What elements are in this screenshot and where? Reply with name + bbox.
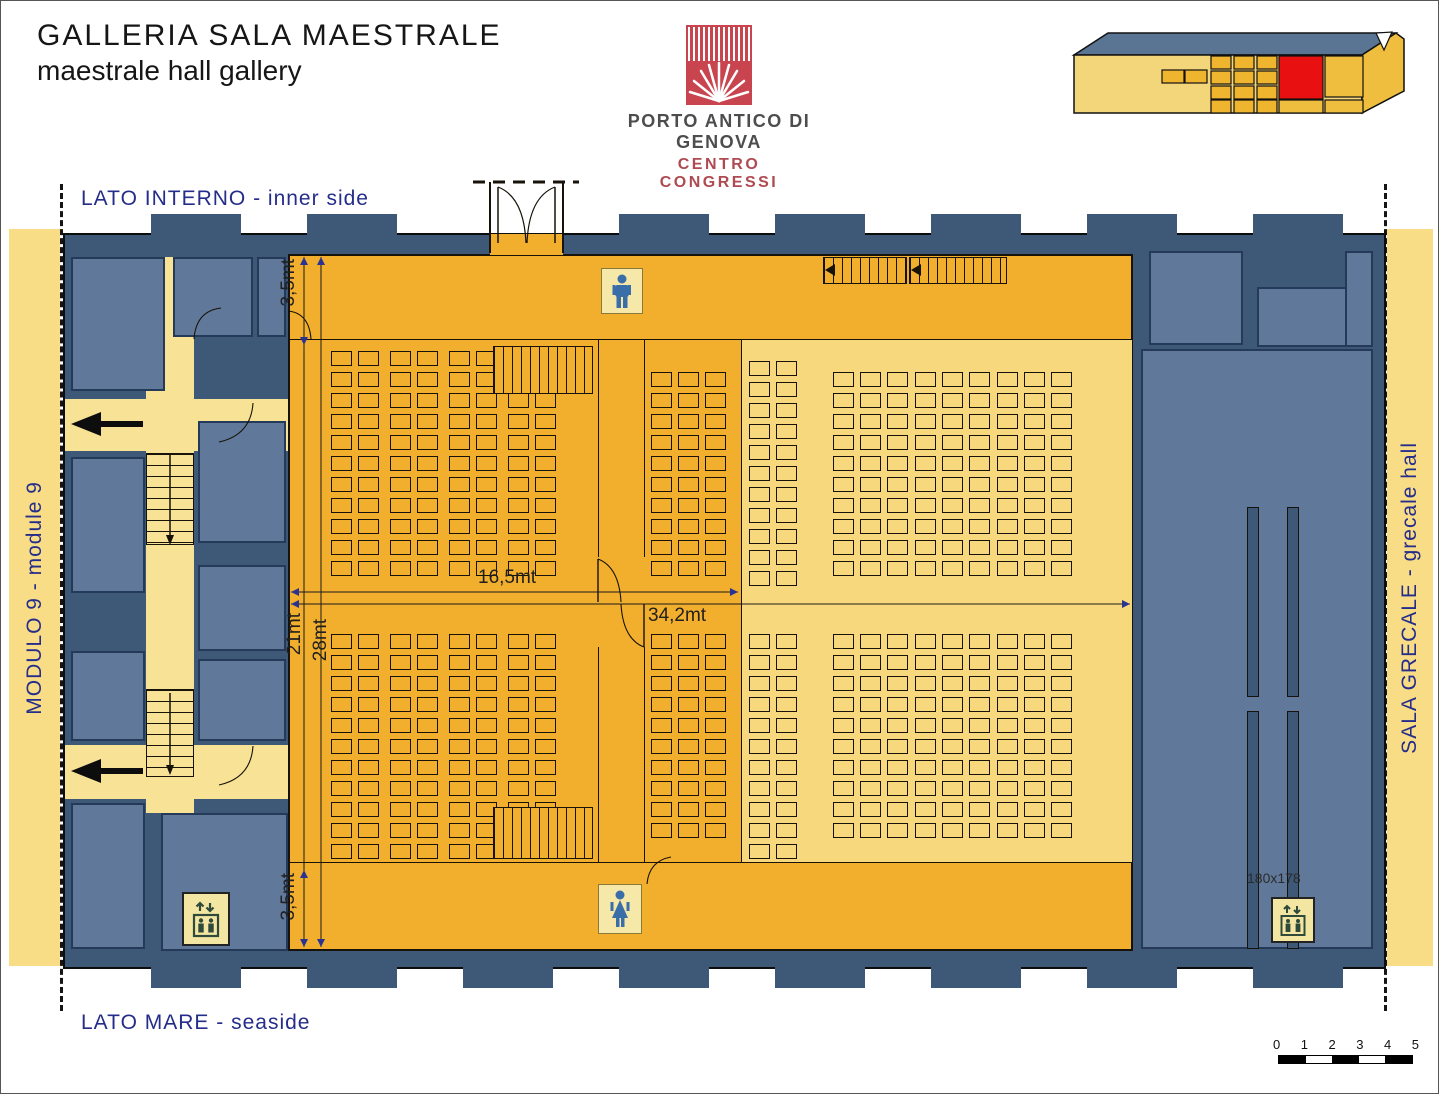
seat: [449, 697, 470, 712]
seat: [1024, 697, 1045, 712]
seat: [678, 739, 699, 754]
seat: [390, 655, 411, 670]
seat: [449, 435, 470, 450]
seat: [705, 372, 726, 387]
dim-bottom-3-5: 3,5mt: [278, 873, 300, 921]
seat: [358, 781, 379, 796]
dim-elevator: 180x178: [1247, 870, 1301, 886]
seat: [749, 655, 770, 670]
seat: [331, 414, 352, 429]
seat: [969, 393, 990, 408]
seat: [833, 372, 854, 387]
seat: [1051, 718, 1072, 733]
seat: [969, 435, 990, 450]
seat: [449, 823, 470, 838]
seat: [535, 634, 556, 649]
seat: [678, 823, 699, 838]
seat: [1024, 561, 1045, 576]
seat: [915, 435, 936, 450]
seat: [508, 676, 529, 691]
seat: [915, 456, 936, 471]
seat: [705, 823, 726, 838]
seat: [833, 477, 854, 492]
seat: [331, 634, 352, 649]
seat: [417, 781, 438, 796]
seat: [449, 760, 470, 775]
seat: [1051, 634, 1072, 649]
seat: [776, 424, 797, 439]
seat: [331, 718, 352, 733]
seat: [678, 456, 699, 471]
seat: [997, 393, 1018, 408]
seat: [749, 676, 770, 691]
seat: [476, 519, 497, 534]
seat: [997, 802, 1018, 817]
elevator-left: [182, 892, 230, 946]
seat: [887, 393, 908, 408]
seat: [887, 697, 908, 712]
seat: [969, 456, 990, 471]
seat: [915, 781, 936, 796]
seat: [390, 414, 411, 429]
seat: [678, 655, 699, 670]
seat: [833, 414, 854, 429]
seat: [1051, 435, 1072, 450]
seat: [358, 802, 379, 817]
seat: [833, 498, 854, 513]
seat: [476, 435, 497, 450]
seat: [331, 498, 352, 513]
seat: [776, 844, 797, 859]
seat: [417, 519, 438, 534]
seat: [390, 823, 411, 838]
seat: [887, 561, 908, 576]
seat: [417, 823, 438, 838]
scalebar-tick: 5: [1412, 1037, 1419, 1052]
seat: [749, 760, 770, 775]
seat: [749, 781, 770, 796]
seat: [417, 372, 438, 387]
seat: [887, 519, 908, 534]
seat: [705, 802, 726, 817]
seat: [833, 781, 854, 796]
seat: [476, 634, 497, 649]
seat: [358, 414, 379, 429]
seat: [358, 456, 379, 471]
seat: [705, 498, 726, 513]
seat: [997, 561, 1018, 576]
scalebar-segment: [1385, 1056, 1412, 1063]
seat: [860, 498, 881, 513]
scalebar-segment: [1279, 1056, 1306, 1063]
seat: [887, 802, 908, 817]
seat: [417, 760, 438, 775]
seat: [915, 372, 936, 387]
seat: [678, 802, 699, 817]
men-wc: [601, 268, 643, 314]
seat: [535, 477, 556, 492]
seat: [915, 393, 936, 408]
seat: [508, 697, 529, 712]
seat: [1051, 414, 1072, 429]
seat: [390, 435, 411, 450]
seat: [417, 393, 438, 408]
seat: [887, 477, 908, 492]
seat: [749, 718, 770, 733]
floorplan-page: GALLERIA SALA MAESTRALE maestrale hall g…: [0, 0, 1439, 1094]
seat: [1051, 393, 1072, 408]
seat: [476, 739, 497, 754]
seat: [833, 634, 854, 649]
seat: [942, 393, 963, 408]
elevator-icon: [1278, 902, 1308, 938]
seat: [535, 498, 556, 513]
seat: [997, 718, 1018, 733]
seat: [1024, 718, 1045, 733]
seat: [449, 414, 470, 429]
seat: [417, 718, 438, 733]
wardrobe-counter: [909, 257, 1007, 284]
seat: [942, 456, 963, 471]
seat: [449, 844, 470, 859]
seat: [997, 519, 1018, 534]
women-wc: [598, 884, 642, 934]
seat: [942, 561, 963, 576]
seat: [887, 634, 908, 649]
seat: [860, 414, 881, 429]
seat: [997, 739, 1018, 754]
seat: [887, 781, 908, 796]
seat: [651, 498, 672, 513]
seat: [969, 802, 990, 817]
seat: [651, 655, 672, 670]
seat: [705, 414, 726, 429]
seat: [476, 697, 497, 712]
seat: [860, 540, 881, 555]
seat: [678, 634, 699, 649]
seat: [776, 550, 797, 565]
seat: [833, 802, 854, 817]
seat: [1024, 435, 1045, 450]
seat: [969, 519, 990, 534]
seat: [969, 477, 990, 492]
seat: [417, 697, 438, 712]
scalebar-segment: [1332, 1056, 1359, 1063]
seat: [508, 456, 529, 471]
seat: [997, 540, 1018, 555]
scalebar-tick: 2: [1329, 1037, 1336, 1052]
seat: [508, 393, 529, 408]
seat: [749, 529, 770, 544]
seat: [1024, 781, 1045, 796]
seat: [358, 540, 379, 555]
wardrobe-counter: [823, 257, 907, 284]
seat: [749, 466, 770, 481]
seat: [749, 403, 770, 418]
seat: [1051, 760, 1072, 775]
seat: [651, 739, 672, 754]
seat: [887, 655, 908, 670]
seat: [1024, 823, 1045, 838]
seat: [860, 477, 881, 492]
seat: [678, 718, 699, 733]
seat: [358, 697, 379, 712]
seat: [390, 760, 411, 775]
seat: [860, 655, 881, 670]
elevator-right: [1271, 897, 1315, 943]
seat: [1051, 519, 1072, 534]
seat: [651, 718, 672, 733]
seat: [651, 781, 672, 796]
seat: [651, 372, 672, 387]
seat: [651, 393, 672, 408]
seat: [678, 372, 699, 387]
seat: [749, 823, 770, 838]
seat: [358, 823, 379, 838]
seat: [997, 655, 1018, 670]
dim-top-3-5: 3,5mt: [278, 259, 300, 307]
seat: [887, 372, 908, 387]
seat: [651, 477, 672, 492]
seat: [705, 676, 726, 691]
seat: [915, 540, 936, 555]
seat: [942, 802, 963, 817]
seat: [508, 519, 529, 534]
seat: [358, 435, 379, 450]
seat: [1051, 697, 1072, 712]
seat: [833, 718, 854, 733]
seat: [860, 456, 881, 471]
seat: [358, 676, 379, 691]
seat: [417, 351, 438, 366]
seat: [860, 372, 881, 387]
seat: [942, 372, 963, 387]
seat: [887, 435, 908, 450]
seat: [358, 655, 379, 670]
seat: [678, 561, 699, 576]
seat: [1024, 540, 1045, 555]
seat: [915, 519, 936, 534]
seat: [417, 414, 438, 429]
seat: [358, 561, 379, 576]
stairs-block: [493, 807, 593, 859]
seat: [476, 718, 497, 733]
seat: [997, 697, 1018, 712]
seat: [508, 739, 529, 754]
scalebar-tick: 0: [1273, 1037, 1280, 1052]
seat: [969, 739, 990, 754]
seat: [749, 487, 770, 502]
seat: [651, 697, 672, 712]
seat: [997, 823, 1018, 838]
seat: [705, 540, 726, 555]
seat: [390, 561, 411, 576]
seat: [942, 435, 963, 450]
seat: [535, 760, 556, 775]
seat: [705, 456, 726, 471]
seat: [417, 739, 438, 754]
dim-21: 21mt: [284, 613, 306, 655]
seat: [449, 561, 470, 576]
seat: [508, 781, 529, 796]
seat: [390, 540, 411, 555]
seat: [508, 498, 529, 513]
seat: [476, 781, 497, 796]
seat: [390, 718, 411, 733]
seat: [705, 760, 726, 775]
seat: [678, 540, 699, 555]
seat: [942, 655, 963, 670]
seat: [705, 519, 726, 534]
seat: [651, 561, 672, 576]
seat: [508, 477, 529, 492]
seat: [860, 435, 881, 450]
seat: [535, 435, 556, 450]
seat: [749, 424, 770, 439]
seat: [449, 634, 470, 649]
seat: [331, 477, 352, 492]
seat: [476, 655, 497, 670]
seat: [776, 487, 797, 502]
seat: [678, 477, 699, 492]
seat: [651, 519, 672, 534]
seat: [1051, 561, 1072, 576]
seat: [997, 435, 1018, 450]
seat: [942, 519, 963, 534]
seat: [860, 781, 881, 796]
seat: [651, 414, 672, 429]
seat: [997, 414, 1018, 429]
seat: [1051, 676, 1072, 691]
seat: [833, 676, 854, 691]
seat: [1051, 802, 1072, 817]
seat: [705, 697, 726, 712]
seat: [997, 634, 1018, 649]
seat: [390, 372, 411, 387]
seat: [449, 676, 470, 691]
seat: [915, 477, 936, 492]
seat: [390, 634, 411, 649]
seat: [390, 676, 411, 691]
seat: [331, 456, 352, 471]
seat: [915, 823, 936, 838]
seat: [1051, 739, 1072, 754]
stairs-block: [493, 346, 593, 394]
seat: [997, 456, 1018, 471]
seat: [449, 781, 470, 796]
seat: [417, 634, 438, 649]
seat: [776, 361, 797, 376]
seat: [449, 372, 470, 387]
seat: [508, 718, 529, 733]
scalebar: [1278, 1055, 1413, 1064]
seat: [535, 697, 556, 712]
seat: [705, 393, 726, 408]
seat: [833, 655, 854, 670]
seat: [942, 718, 963, 733]
seat: [678, 697, 699, 712]
seat: [860, 823, 881, 838]
seat: [887, 823, 908, 838]
seat: [449, 739, 470, 754]
seat: [705, 477, 726, 492]
seat: [417, 540, 438, 555]
seat: [390, 477, 411, 492]
seat: [331, 802, 352, 817]
seat: [331, 351, 352, 366]
seat: [776, 760, 797, 775]
seat: [915, 697, 936, 712]
seat: [651, 456, 672, 471]
seat: [1024, 414, 1045, 429]
seat: [449, 519, 470, 534]
scalebar-tick: 1: [1301, 1037, 1308, 1052]
seat: [997, 477, 1018, 492]
seat: [776, 571, 797, 586]
seat: [331, 697, 352, 712]
seat: [997, 760, 1018, 775]
seat: [776, 529, 797, 544]
seat: [997, 372, 1018, 387]
seat: [776, 676, 797, 691]
seat: [833, 519, 854, 534]
seat: [358, 477, 379, 492]
seat: [449, 498, 470, 513]
seat: [833, 540, 854, 555]
women-wc-icon: [607, 889, 633, 929]
seat: [535, 540, 556, 555]
seat: [535, 519, 556, 534]
seat: [508, 655, 529, 670]
seat: [678, 435, 699, 450]
seat: [860, 697, 881, 712]
seat: [969, 634, 990, 649]
seat: [449, 718, 470, 733]
seat: [331, 519, 352, 534]
seat: [887, 456, 908, 471]
seat: [942, 414, 963, 429]
seat: [776, 718, 797, 733]
seat: [942, 823, 963, 838]
seat: [331, 393, 352, 408]
seat: [417, 456, 438, 471]
seat: [915, 676, 936, 691]
seat: [449, 540, 470, 555]
seat: [417, 655, 438, 670]
seat: [678, 676, 699, 691]
seat: [417, 498, 438, 513]
seat: [1024, 802, 1045, 817]
seat: [915, 634, 936, 649]
seat: [776, 781, 797, 796]
seat: [942, 676, 963, 691]
seat: [833, 456, 854, 471]
seat: [358, 372, 379, 387]
seat: [417, 435, 438, 450]
seat: [915, 498, 936, 513]
seat: [887, 414, 908, 429]
seat: [776, 823, 797, 838]
seat: [417, 844, 438, 859]
seat: [705, 655, 726, 670]
elevator-icon: [190, 899, 222, 939]
seat: [449, 351, 470, 366]
seat: [942, 697, 963, 712]
seat: [535, 739, 556, 754]
seat: [1051, 456, 1072, 471]
seat: [915, 561, 936, 576]
seat: [705, 739, 726, 754]
